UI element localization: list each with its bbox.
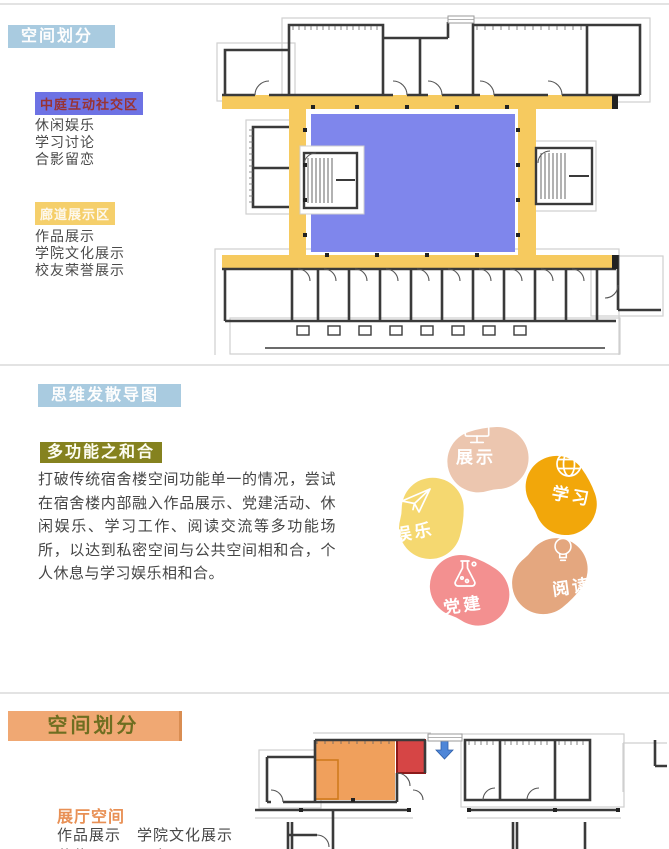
top-rule	[0, 3, 669, 5]
floor-plan-level1	[255, 728, 669, 849]
legend-corridor: 廊道展示区 作品展示 学院文化展示 校友荣誉展示	[35, 202, 125, 280]
paper-plane-icon	[399, 485, 433, 515]
hall-legend-line1: 作品展示 学院文化展示	[57, 824, 233, 845]
hall-legend-line2: 获奖展示 画室	[57, 845, 169, 849]
lightbulb-icon	[549, 535, 577, 567]
entrance-bridge	[428, 734, 462, 741]
mindmap-subheader: 多功能之和合	[40, 442, 162, 463]
legend-atrium-title: 中庭互动社交区	[35, 92, 143, 115]
monitor-icon	[461, 419, 493, 446]
stair-left	[300, 146, 364, 214]
bath-cells	[265, 326, 605, 348]
mindmap-subheader-wrap: 多功能之和合	[40, 442, 162, 463]
legend-atrium-item: 合影留恋	[35, 152, 143, 169]
legend-atrium-item: 休闲娱乐	[35, 118, 143, 135]
legend-atrium-item: 学习讨论	[35, 135, 143, 152]
legend-corridor-item: 作品展示	[35, 229, 125, 246]
entrance-arrow-icon	[436, 741, 453, 759]
legend-corridor-item: 校友荣誉展示	[35, 263, 125, 280]
legend-corridor-title: 廊道展示区	[35, 202, 115, 225]
stair-right	[536, 148, 592, 204]
section3-header: 空间划分	[8, 711, 182, 741]
section1-header: 空间划分	[8, 25, 115, 48]
exhibition-zone-orange	[315, 740, 395, 800]
poster-page: 空间划分 中庭互动社交区 休闲娱乐 学习讨论 合影留恋 廊道展示区 作品展示 学…	[0, 0, 669, 849]
ring-label-display: 展示	[456, 443, 496, 468]
section2-header: 思维发散导图	[38, 384, 181, 407]
highlight-zone-red	[397, 740, 425, 773]
flask-icon	[449, 557, 481, 589]
section-divider	[0, 692, 669, 694]
mindmap-paragraph: 打破传统宿舍楼空间功能单一的情况，尝试在宿舍楼内部融入作品展示、党建活动、休闲娱…	[38, 469, 336, 587]
entrance-bridge	[448, 16, 474, 23]
legend-atrium: 中庭互动社交区 休闲娱乐 学习讨论 合影留恋	[35, 92, 143, 169]
legend-corridor-item: 学院文化展示	[35, 246, 125, 263]
globe-icon	[553, 448, 585, 480]
section-divider	[0, 364, 669, 366]
floor-plan-level2	[205, 8, 665, 355]
